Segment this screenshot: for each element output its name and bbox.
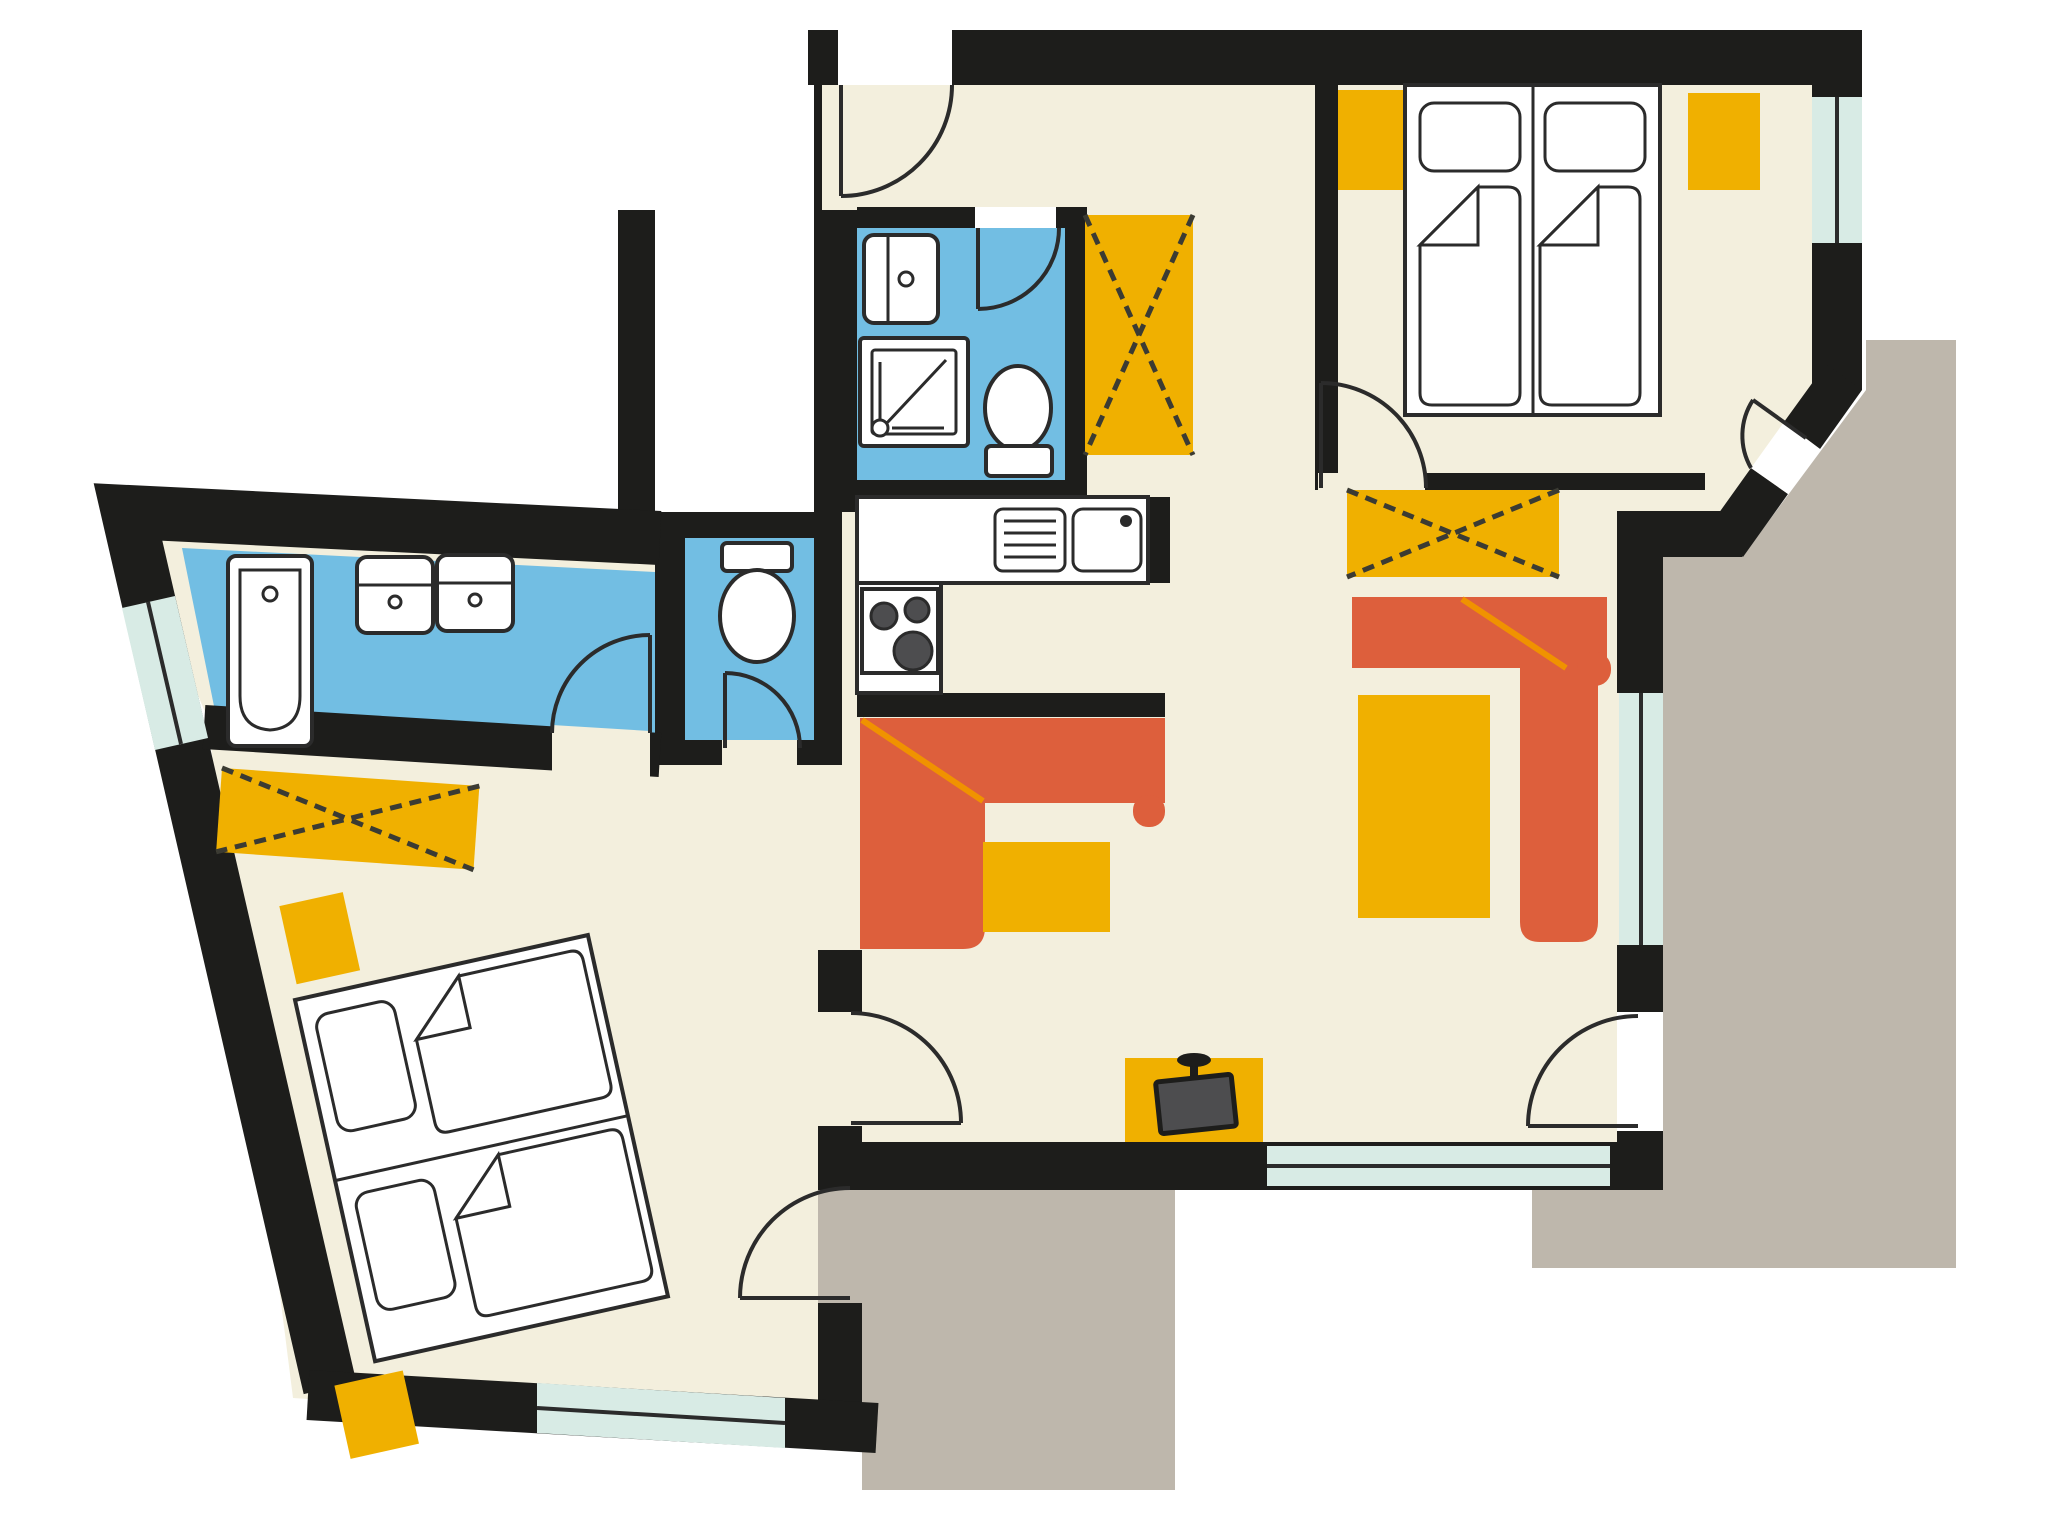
- wall-bedroomL-living-1: [818, 950, 862, 1012]
- wall-wc-east: [814, 512, 842, 765]
- toilet-wc: [720, 543, 794, 662]
- kitchen-sink: [1073, 509, 1141, 571]
- terrace-bottom: [862, 1190, 1175, 1490]
- wardrobe-x-left: [216, 768, 479, 870]
- wall-bedroomL-living-2: [818, 1126, 862, 1190]
- floor-plan-page: [0, 0, 2048, 1536]
- wall-wc-west: [655, 538, 685, 765]
- wall-hall-west: [814, 210, 857, 512]
- twin-beds: [1405, 85, 1660, 415]
- floor-plan-svg: [0, 0, 2048, 1536]
- wall-living-east-2: [1617, 945, 1663, 1012]
- tv-on-stand: [1125, 1053, 1263, 1142]
- washbasin-1: [357, 557, 433, 633]
- wall-shower-east: [1065, 207, 1087, 480]
- wall-bedroomR-south-b: [1425, 473, 1705, 490]
- wall-kitchen-stub: [1148, 497, 1170, 583]
- wall-wc-south-a: [685, 740, 722, 765]
- sideboard-x: [1347, 490, 1559, 577]
- wall-void-south: [655, 512, 820, 538]
- wall-shower-south: [817, 480, 1087, 497]
- nightstand-right-1: [1338, 90, 1406, 190]
- wc-fixtures: [720, 543, 794, 662]
- wall-living-east-1: [1617, 511, 1663, 693]
- wall-void-spur: [618, 210, 655, 520]
- bathtub: [228, 556, 312, 746]
- window-bedroomR-east: [1812, 97, 1862, 243]
- wall-shower-north: [857, 207, 975, 228]
- wall-kitchen-south: [857, 693, 1165, 717]
- washbasin-2: [437, 555, 513, 631]
- coffee-table: [1358, 695, 1490, 918]
- pillow: [1420, 103, 1520, 171]
- window-living-east: [1619, 693, 1663, 945]
- wall-bedroomR-west: [1315, 85, 1338, 473]
- hall-wardrobe: [1085, 215, 1193, 455]
- shower: [860, 338, 968, 446]
- pillow: [1545, 103, 1645, 171]
- toilet-shower-room: [985, 366, 1052, 476]
- stove: [862, 589, 938, 673]
- tv-mount: [1177, 1053, 1211, 1067]
- tv-screen: [1155, 1074, 1236, 1134]
- wall-hall-west-thin: [814, 85, 822, 210]
- nightstand-right-2: [1688, 93, 1760, 190]
- window-living-south: [1267, 1146, 1610, 1186]
- wall-living-topright: [1663, 511, 1742, 557]
- wall-shower-north-stub: [1056, 207, 1065, 228]
- washing-machine: [864, 235, 938, 323]
- wall-top: [808, 30, 1862, 85]
- wall-bedroom-east-upper: [1812, 85, 1862, 99]
- kitchen-drainer: [995, 509, 1065, 571]
- wall-bedroom-east-lower: [1812, 243, 1862, 390]
- dining-table: [983, 842, 1110, 932]
